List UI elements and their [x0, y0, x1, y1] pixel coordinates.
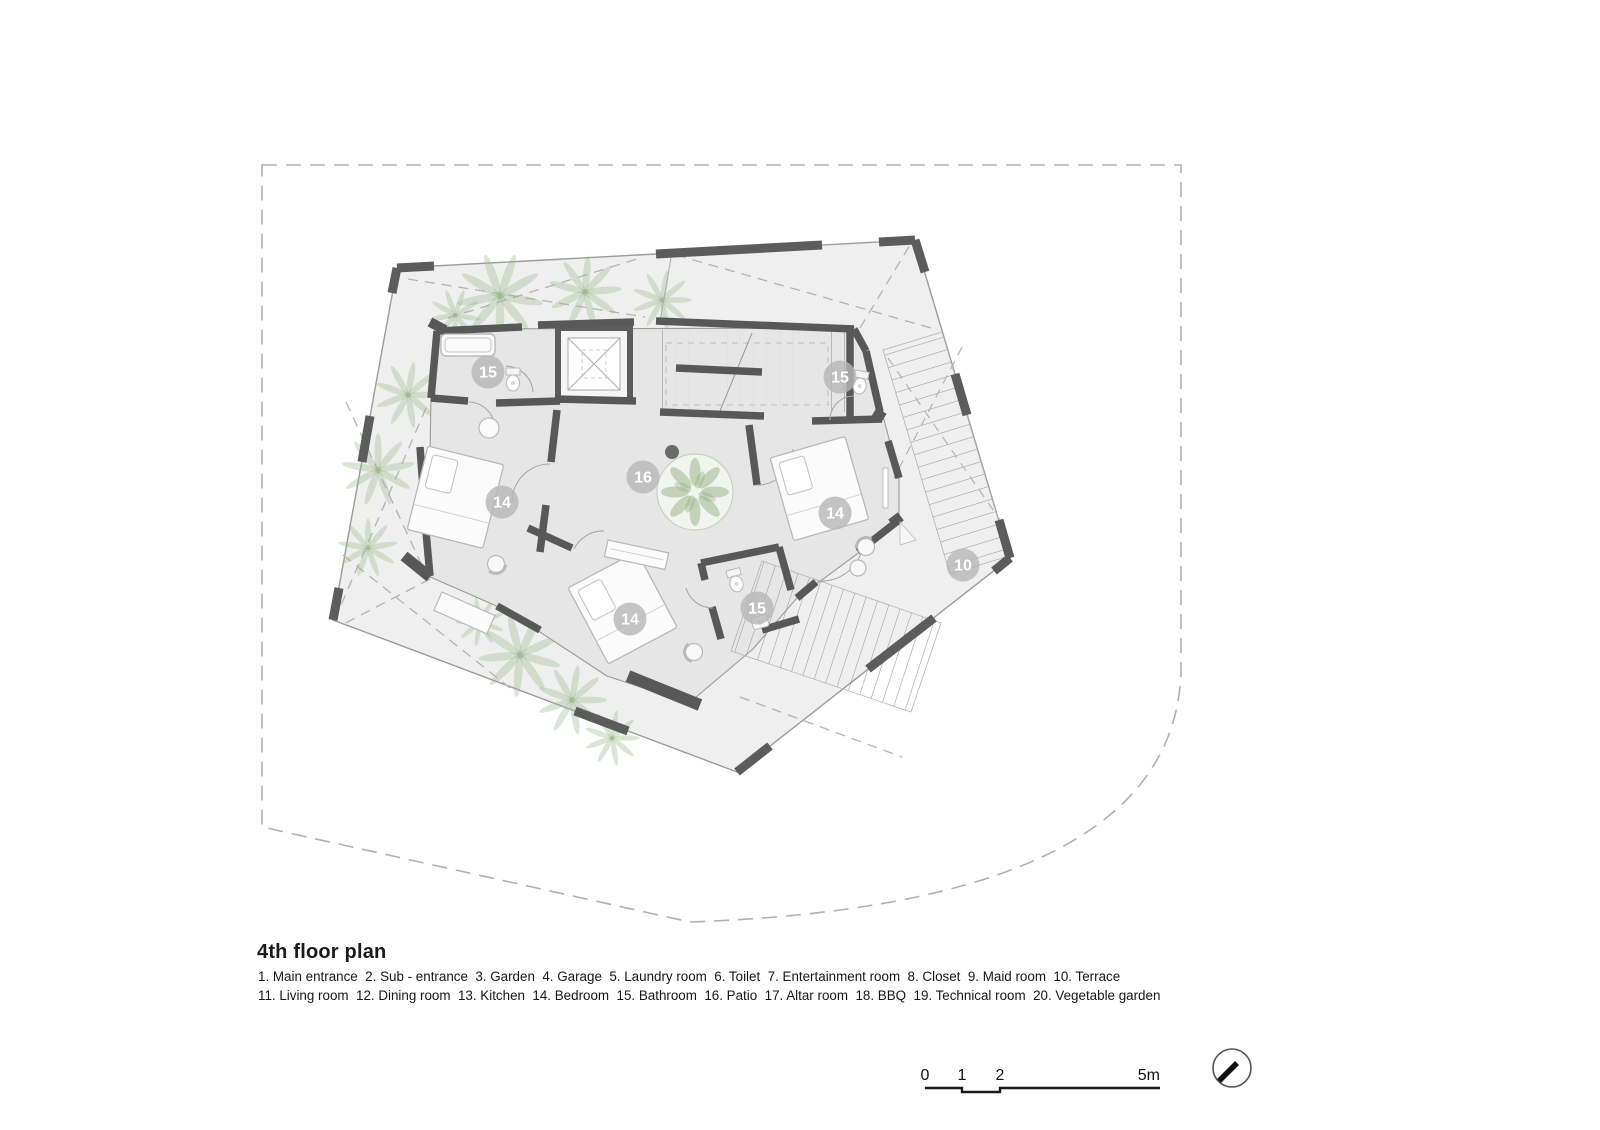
- svg-text:14: 14: [621, 612, 639, 629]
- svg-text:1: 1: [958, 1067, 967, 1084]
- side-table: [479, 418, 499, 438]
- page-title: 4th floor plan: [257, 941, 386, 964]
- room-label-bedroom-left: 14: [486, 486, 519, 519]
- floor-plan-page: 15 15 14 16 14 10 15 14: [0, 0, 1600, 1130]
- patio-plant: [657, 454, 733, 530]
- svg-text:10: 10: [954, 558, 972, 575]
- shelf-right: [883, 468, 888, 508]
- elevator-shaft: [558, 328, 630, 400]
- room-label-bedroom-right: 14: [819, 497, 852, 530]
- room-label-terrace: 10: [947, 549, 980, 582]
- svg-text:15: 15: [748, 601, 766, 618]
- toilet-bathroom-topleft: [506, 368, 520, 391]
- svg-text:15: 15: [479, 365, 497, 382]
- svg-text:16: 16: [634, 470, 652, 487]
- svg-text:0: 0: [921, 1067, 930, 1084]
- stool: [850, 560, 866, 576]
- north-arrow-icon: [1213, 1049, 1251, 1087]
- svg-text:2: 2: [996, 1067, 1005, 1084]
- svg-text:5m: 5m: [1138, 1067, 1160, 1084]
- svg-text:15: 15: [831, 370, 849, 387]
- room-label-bathroom-topright: 15: [824, 361, 857, 394]
- structural-column: [665, 445, 679, 459]
- floor-plan-drawing: 15 15 14 16 14 10 15 14: [0, 0, 1600, 1130]
- svg-text:14: 14: [826, 506, 844, 523]
- legend-line-2: 11. Living room 12. Dining room 13. Kitc…: [258, 988, 1160, 1003]
- room-label-bathroom-bottom: 15: [741, 592, 774, 625]
- room-label-bathroom-topleft: 15: [472, 356, 505, 389]
- scale-bar: 0 1 2 5m: [921, 1067, 1160, 1092]
- bathtub: [441, 334, 495, 356]
- room-label-bedroom-bottom: 14: [614, 603, 647, 636]
- legend-line-1: 1. Main entrance 2. Sub - entrance 3. Ga…: [258, 969, 1120, 984]
- svg-text:14: 14: [493, 495, 511, 512]
- room-label-patio: 16: [627, 461, 660, 494]
